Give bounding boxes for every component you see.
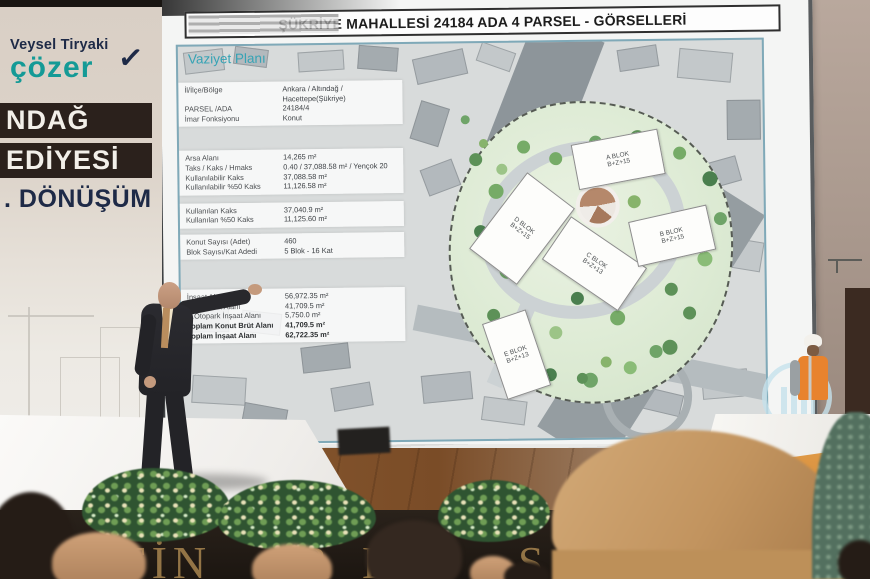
info-value: 11,126.58 m² — [283, 180, 397, 191]
worker-arm — [790, 360, 800, 396]
slide-title: ŞÜKRİYE MAHALLESİ 24184 ADA 4 PARSEL - G… — [278, 11, 686, 32]
map-building — [677, 48, 734, 83]
info-section: İl/İlçe/BölgeAnkara / Altındağ / Hacette… — [178, 80, 403, 127]
map-building — [421, 371, 474, 404]
info-value: Ankara / Altındağ / Hacettepe(Şükriye) — [282, 83, 396, 104]
map-building — [357, 45, 399, 72]
info-label: Kullanılan %50 Kaks — [186, 215, 284, 226]
brand-logo: Veysel Tiryaki çözer — [10, 37, 108, 83]
presenter-left-hand — [144, 376, 156, 388]
info-label: Kullanılabilir %50 Kaks — [185, 182, 283, 193]
map-building — [412, 48, 468, 85]
map-building — [481, 396, 528, 425]
stage-monitor — [337, 427, 390, 456]
map-building — [476, 41, 517, 72]
flower-arrangement — [218, 480, 376, 550]
trees — [461, 115, 470, 124]
info-section: Konut Sayısı (Adet)460 Blok Sayısı/Kat A… — [180, 232, 404, 260]
worker-face — [807, 345, 819, 356]
brand-name-main: çözer — [10, 53, 108, 83]
info-value: 5 Blok - 16 Kat — [284, 245, 398, 256]
crane-icon — [828, 255, 864, 275]
info-value: Konut — [283, 112, 397, 123]
presenter-leg — [165, 391, 193, 479]
wall-sketch-crane-arm — [8, 315, 94, 317]
map-building — [300, 342, 351, 373]
flower-arrangement — [438, 480, 550, 542]
info-section: Kullanılan Kaks37,040.9 m² Kullanılan %5… — [180, 201, 404, 229]
map-building — [726, 100, 760, 140]
info-label: Blok Sayısı/Kat Adedi — [186, 246, 284, 257]
checkmark-icon: ✓ — [116, 40, 145, 77]
info-value: 11,125.60 m² — [284, 213, 398, 224]
presenter-legs — [144, 392, 190, 480]
safety-vest — [798, 356, 828, 400]
banner-line-2: EDİYESİ — [0, 143, 152, 178]
presenter-hand — [248, 284, 262, 295]
presenter-leg — [141, 391, 165, 478]
presenter — [118, 280, 268, 492]
map-building — [409, 100, 450, 147]
banner-line-1: NDAĞ — [0, 103, 152, 138]
info-label: İl/İlçe/Bölge — [184, 84, 282, 104]
map-building — [420, 158, 462, 196]
info-section: Arsa Alanı14,265 m² Taks / Kaks / Hmaks0… — [179, 148, 404, 195]
section-label: Vaziyet Planı — [188, 51, 266, 67]
info-value: 62,722.35 m² — [285, 329, 399, 340]
map-building — [330, 381, 373, 411]
map-building — [297, 50, 344, 73]
event-photo: ŞÜKRİYE MAHALLESİ 24184 ADA 4 PARSEL - G… — [0, 0, 870, 579]
trees — [479, 139, 488, 148]
banner-line-3: . DÖNÜŞÜM — [4, 185, 152, 214]
presenter-head — [158, 282, 181, 309]
map-building — [617, 44, 660, 72]
info-label: İmar Fonksiyonu — [185, 113, 283, 124]
